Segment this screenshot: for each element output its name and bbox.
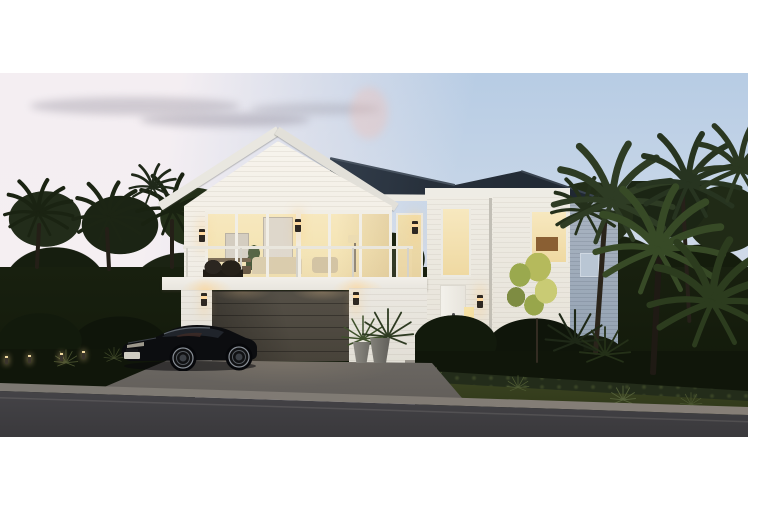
garden-bollard-light xyxy=(82,351,85,359)
flax-plant-icon xyxy=(575,321,635,381)
balustrade-post xyxy=(296,248,298,278)
garage-sconce-light xyxy=(201,293,207,306)
cloud-wisp xyxy=(140,113,310,127)
garden-bollard-light xyxy=(60,353,63,361)
grass-tuft-icon xyxy=(505,373,531,399)
garden-bollard-light xyxy=(28,355,31,363)
house-photo xyxy=(0,73,748,437)
entry-upper-window xyxy=(441,207,471,277)
balcony-sconce-light xyxy=(295,219,301,232)
balcony-sconce-light xyxy=(199,229,205,242)
sun-flare xyxy=(350,87,388,139)
balustrade-post xyxy=(407,248,409,278)
black-coupe-car xyxy=(118,321,263,371)
grass-tuft-icon xyxy=(52,347,80,375)
balcony-handrail xyxy=(183,246,413,249)
balcony-outdoor-chairs xyxy=(203,259,243,278)
render-canvas xyxy=(0,0,768,512)
balustrade-post xyxy=(186,248,188,278)
balcony-sconce-light xyxy=(412,221,418,234)
palm-tree-icon xyxy=(637,225,748,375)
glazing-head-frame xyxy=(205,210,392,214)
balustrade-post xyxy=(352,248,354,278)
palm-tree-icon xyxy=(125,159,180,214)
entry-sconce-light xyxy=(477,295,483,308)
garden-bollard-light xyxy=(5,356,8,364)
